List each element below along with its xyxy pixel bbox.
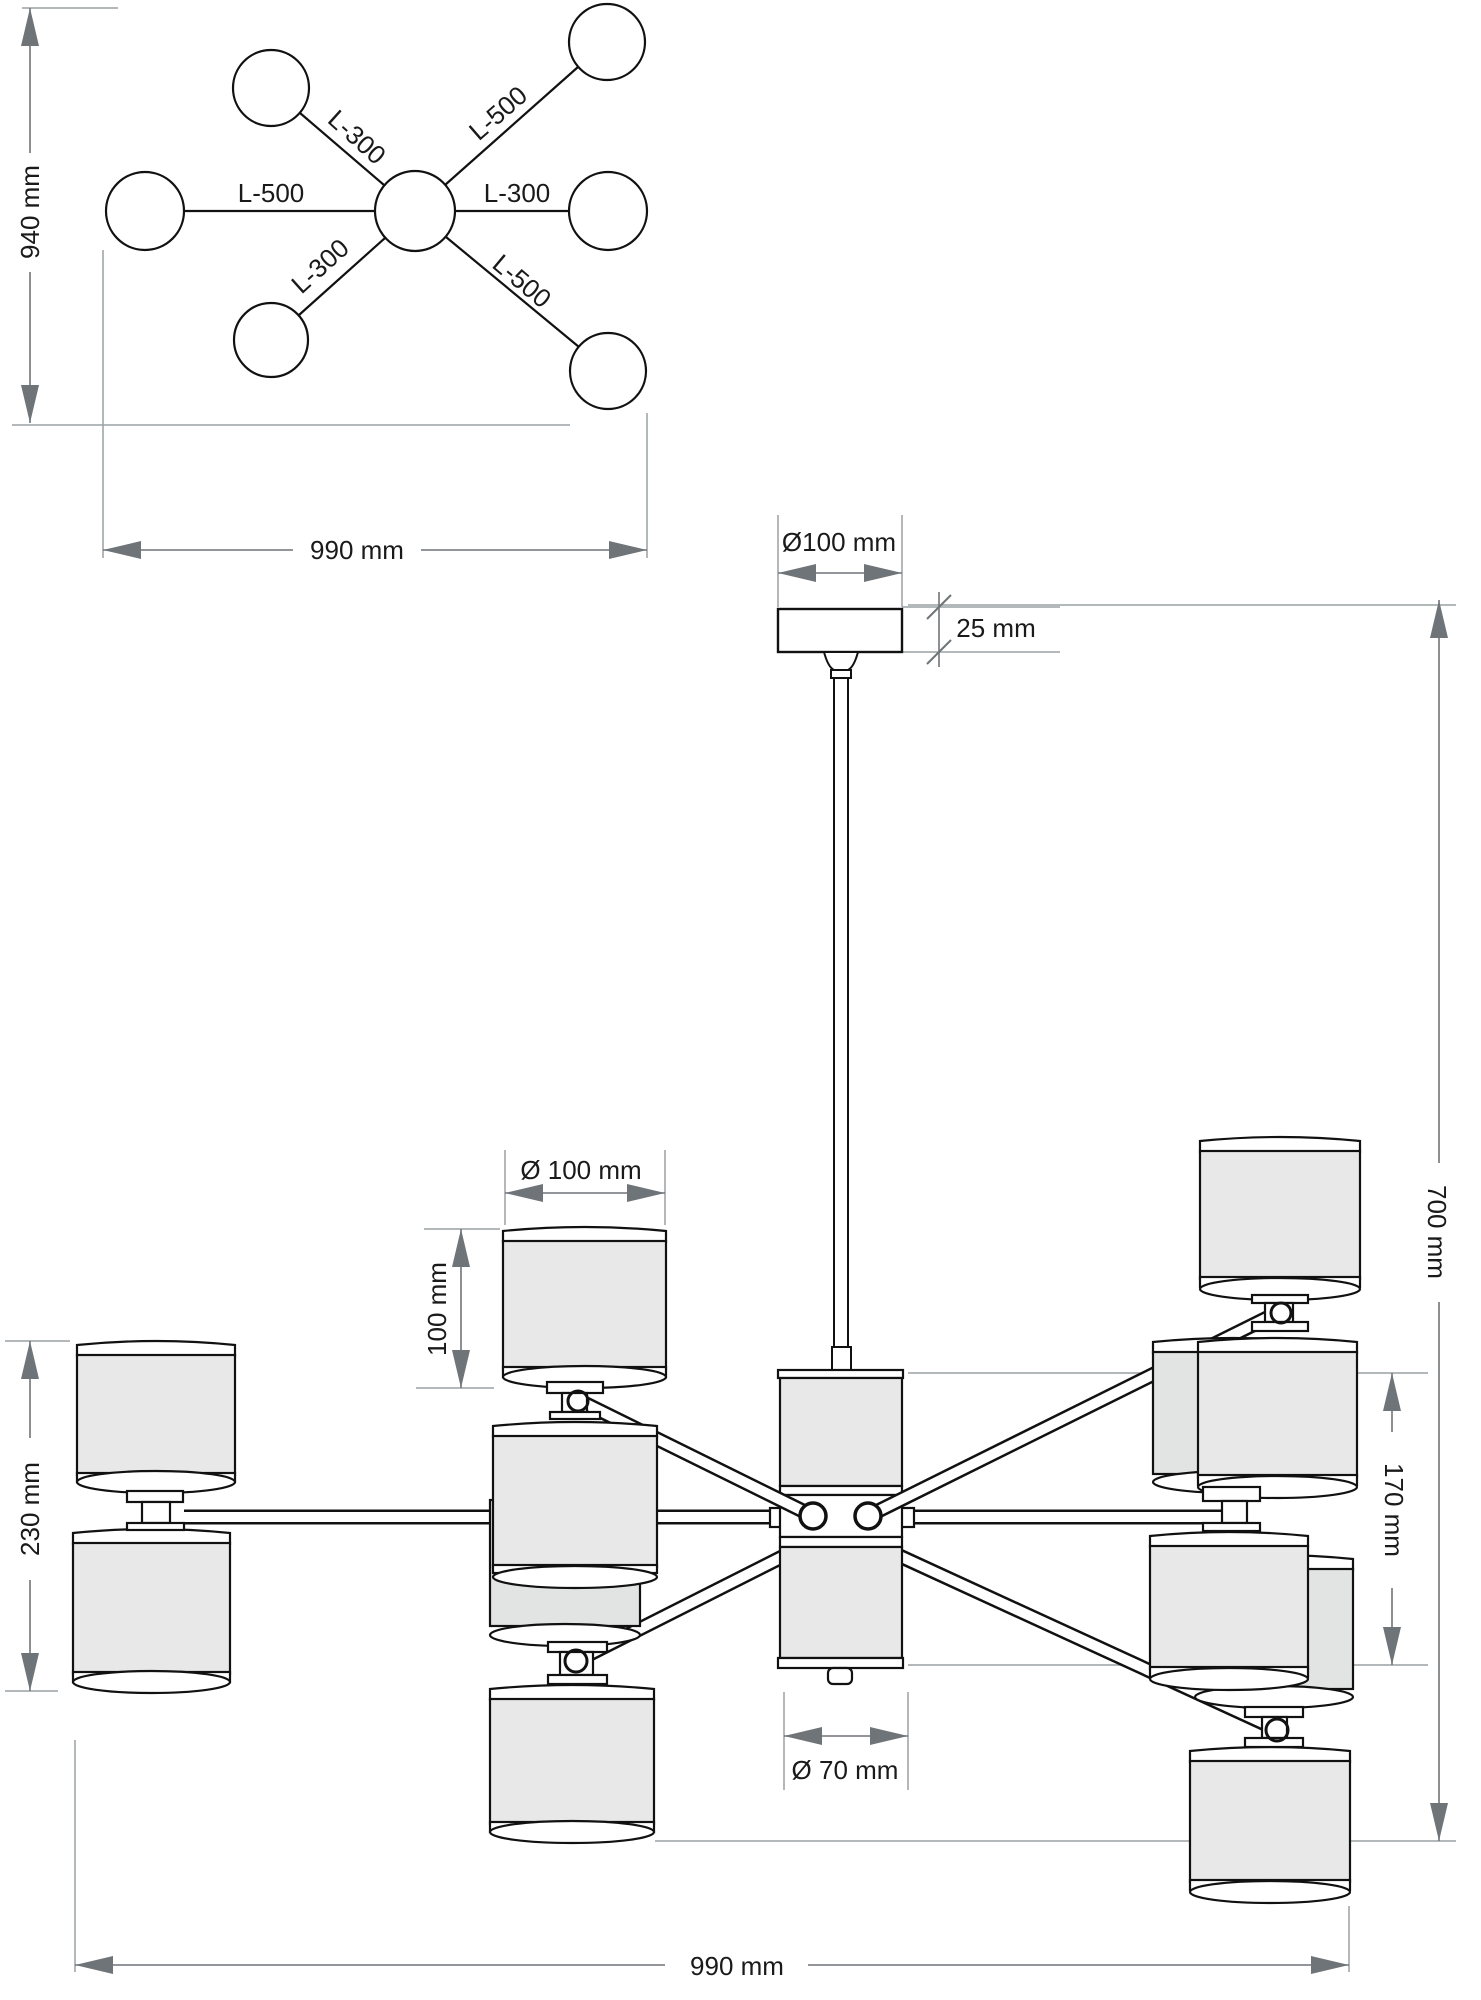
plan-height-dimension-label: 940 mm xyxy=(17,165,43,259)
shade-right-middle xyxy=(1198,1338,1357,1498)
shade-centerleft-lower xyxy=(490,1685,654,1843)
shade-right-lower xyxy=(1150,1532,1308,1690)
shade-pair-height-label: 230 mm xyxy=(17,1462,43,1556)
central-body xyxy=(770,1370,914,1684)
shade-height-label: 100 mm xyxy=(424,1262,450,1356)
body-diameter-label: Ø 70 mm xyxy=(792,1757,899,1783)
shade-left-lower xyxy=(73,1529,230,1693)
canopy-diameter-label: Ø100 mm xyxy=(782,529,896,555)
shade-right-top xyxy=(1200,1137,1360,1300)
plan-view xyxy=(106,4,647,409)
shade-left-upper xyxy=(77,1341,235,1493)
canopy-height-label: 25 mm xyxy=(956,615,1035,641)
stem-centerleft-lower xyxy=(548,1642,607,1684)
body-height-label: 170 mm xyxy=(1381,1463,1407,1557)
overall-width-label: 990 mm xyxy=(690,1953,784,1979)
technical-drawing-canvas: 940 mm 990 mm L-500 L-300 L-300 L-500 L-… xyxy=(0,0,1481,2000)
shade-diameter-label: Ø 100 mm xyxy=(520,1157,641,1183)
arm-length-label-left: L-500 xyxy=(238,180,305,206)
arm-length-label-right: L-300 xyxy=(484,180,551,206)
stem-left xyxy=(127,1491,184,1530)
stem-right-middle xyxy=(1203,1487,1260,1531)
canopy-and-rod xyxy=(778,609,902,1372)
shade-centerleft-upper xyxy=(503,1227,666,1388)
overall-height-label: 700 mm xyxy=(1424,1185,1450,1279)
shade-centerleft-middle xyxy=(493,1422,657,1588)
shade-right-bottom xyxy=(1190,1747,1350,1903)
drawing-linework xyxy=(0,0,1481,2000)
arms-lower xyxy=(184,1517,1274,1728)
plan-width-dimension-label: 990 mm xyxy=(310,537,404,563)
